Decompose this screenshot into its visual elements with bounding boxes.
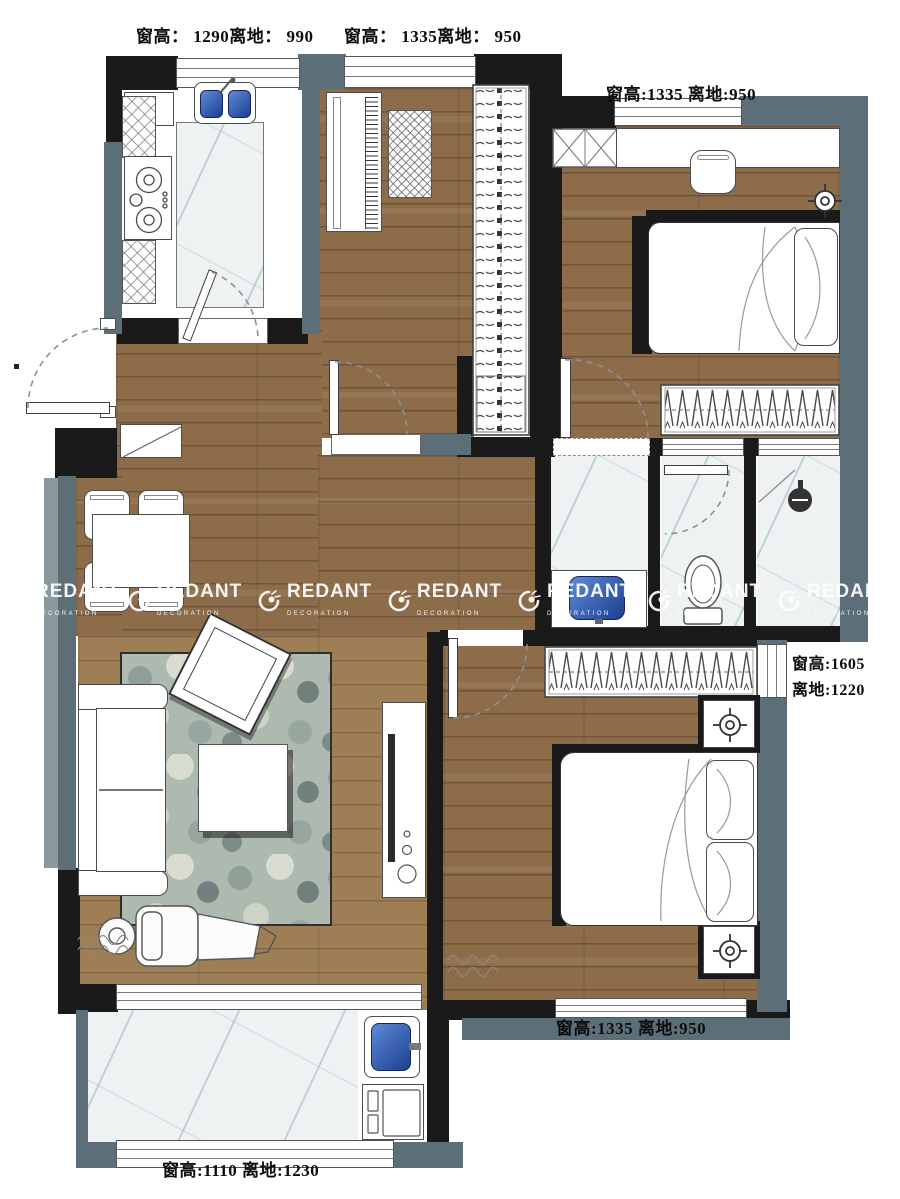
dining-table: [92, 514, 190, 588]
watermark: REDANTDECORATION: [126, 582, 242, 620]
piano: [326, 92, 382, 232]
wall-segment: [302, 88, 320, 334]
window-annotation-master-bottom: 窗高:1335 离地:950: [556, 1014, 706, 1039]
coffee-table: [198, 744, 288, 832]
pillow-fold-line: [795, 229, 839, 347]
ceiling-light-symbol: [806, 182, 844, 220]
faucet-icon: [217, 77, 237, 95]
watermark: REDANTDECORATION: [516, 582, 632, 620]
bedroom2-wardrobe: [660, 384, 840, 436]
kitchen-double-sink: [194, 82, 256, 124]
storage-cabinet: [552, 128, 618, 168]
pillow-fold-line: [707, 843, 755, 923]
watermark-brand: REDANT: [35, 581, 120, 602]
bedroom2-door-swing: [552, 352, 656, 448]
master-side-window: [757, 644, 787, 698]
watermark-subtitle: DECORATION: [417, 611, 481, 617]
wall-segment: [421, 434, 471, 455]
watermark-subtitle: DECORATION: [677, 611, 741, 617]
washing-machine-detail: [363, 1085, 425, 1141]
watermark: REDANTDECORATION: [386, 582, 502, 620]
stove: [124, 156, 172, 240]
piano-keys: [365, 97, 378, 229]
wall-segment: [457, 356, 473, 436]
balcony-sliding-door: [116, 984, 422, 1010]
window-annotation-study: 窗高： 1335离地： 950: [344, 22, 522, 47]
watermark-subtitle: DECORATION: [35, 611, 99, 617]
piano-body-line: [333, 97, 341, 229]
redant-ant-logo-icon: [646, 588, 672, 614]
wall-segment: [427, 632, 443, 1012]
window-annotation-kitchen: 窗高： 1290离地： 990: [136, 22, 314, 47]
wall-segment: [55, 428, 117, 478]
shower-corner-shelf: [757, 468, 797, 504]
faucet-icon: [409, 1043, 421, 1050]
wall-segment: [393, 1142, 463, 1168]
wall-segment: [58, 476, 76, 870]
entry-door-swing: [18, 318, 118, 414]
sofa: [78, 684, 168, 896]
cabinet-diagonal: [121, 425, 183, 459]
ceiling-light-symbol: [711, 706, 749, 744]
sofa-seat-divider: [99, 789, 163, 791]
master-door-swing: [444, 636, 536, 728]
redant-ant-logo-icon: [776, 588, 802, 614]
chair-back: [144, 495, 178, 500]
window-annotation-balcony: 窗高:1110 离地:1230: [162, 1156, 319, 1181]
redant-ant-logo-icon: [4, 588, 30, 614]
watermark-brand: REDANT: [547, 581, 632, 602]
wall-segment: [298, 54, 346, 90]
kitchen-door-swing: [180, 262, 280, 346]
redant-ant-logo-icon: [256, 588, 282, 614]
wall-segment: [744, 438, 758, 456]
curtain-squiggle: [76, 930, 138, 960]
kitchen-counter: [122, 96, 156, 158]
chair-back: [697, 155, 729, 160]
wall-segment: [521, 630, 761, 646]
pillow: [794, 228, 838, 346]
watermark-subtitle: DECORATION: [157, 611, 221, 617]
watermark-brand: REDANT: [807, 581, 892, 602]
watermark-subtitle: DECORATION: [807, 611, 871, 617]
tv: [388, 734, 395, 862]
study-wardrobe: [472, 84, 530, 436]
floor-plan: REDANTDECORATION REDANTDECORATION REDANT…: [0, 0, 900, 1199]
toilet-door-swing: [660, 462, 740, 542]
kitchen-counter: [122, 240, 156, 304]
wall-segment: [440, 1000, 556, 1020]
watermark-brand: REDANT: [417, 581, 502, 602]
redant-ant-logo-icon: [516, 588, 542, 614]
study-door-swing: [326, 356, 418, 440]
door-stop-dot: [14, 364, 19, 369]
watermark-brand: REDANT: [677, 581, 762, 602]
sofa-seats: [96, 708, 166, 872]
wall-segment: [76, 1010, 88, 1144]
curtain-squiggle: [446, 950, 508, 984]
wall-segment: [106, 56, 122, 144]
wall-segment: [840, 96, 868, 642]
sofa-armrest: [78, 684, 168, 710]
watermark-brand: REDANT: [287, 581, 372, 602]
wall-segment: [117, 318, 179, 344]
nightstand: [703, 700, 755, 748]
watermark: REDANTDECORATION: [4, 582, 120, 620]
watermark: REDANTDECORATION: [776, 582, 892, 620]
watermark: REDANTDECORATION: [646, 582, 762, 620]
balcony-floor: [86, 1010, 358, 1142]
pillow-fold-line: [707, 761, 755, 841]
stove-burners-icon: [125, 157, 173, 241]
laundry-sink: [364, 1016, 420, 1078]
exterior-wall-shading: [44, 478, 58, 868]
chair-back: [90, 495, 124, 500]
wall-segment: [60, 984, 118, 1012]
sofa-armrest: [78, 870, 168, 896]
sink-basin: [371, 1023, 411, 1071]
wall-segment: [76, 1142, 118, 1168]
side-table-inner: [183, 627, 277, 721]
ceiling-light-symbol: [711, 932, 749, 970]
wall-segment: [104, 142, 122, 334]
window-annotation-bedroom2: 窗高:1335 离地:950: [606, 80, 756, 105]
toilet-room-window: [662, 438, 744, 456]
pillow: [706, 842, 754, 922]
window-annotation-master-right-l1: 窗高:1605: [792, 650, 865, 674]
sofa-back: [78, 684, 98, 896]
watermark-subtitle: DECORATION: [547, 611, 611, 617]
nightstand: [703, 926, 755, 974]
shower-room-window: [758, 438, 840, 456]
shoe-cabinet: [120, 424, 182, 458]
redant-ant-logo-icon: [386, 588, 412, 614]
console-decor-icon: [396, 826, 422, 888]
washing-machine: [362, 1084, 424, 1140]
desk-chair: [690, 150, 736, 194]
study-window: [344, 56, 476, 88]
redant-ant-logo-icon: [126, 588, 152, 614]
watermark-subtitle: DECORATION: [287, 611, 351, 617]
piano-bench: [388, 110, 432, 198]
watermark-brand: REDANT: [157, 581, 242, 602]
window-annotation-master-right-l2: 离地:1220: [792, 676, 865, 700]
master-wardrobe: [544, 646, 758, 698]
pillow: [706, 760, 754, 840]
watermark: REDANTDECORATION: [256, 582, 372, 620]
